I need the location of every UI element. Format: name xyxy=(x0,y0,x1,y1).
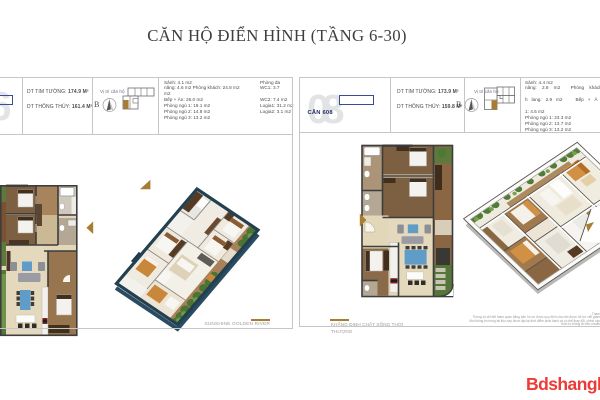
svg-text:B: B xyxy=(456,100,461,109)
svg-text:B: B xyxy=(94,100,99,109)
